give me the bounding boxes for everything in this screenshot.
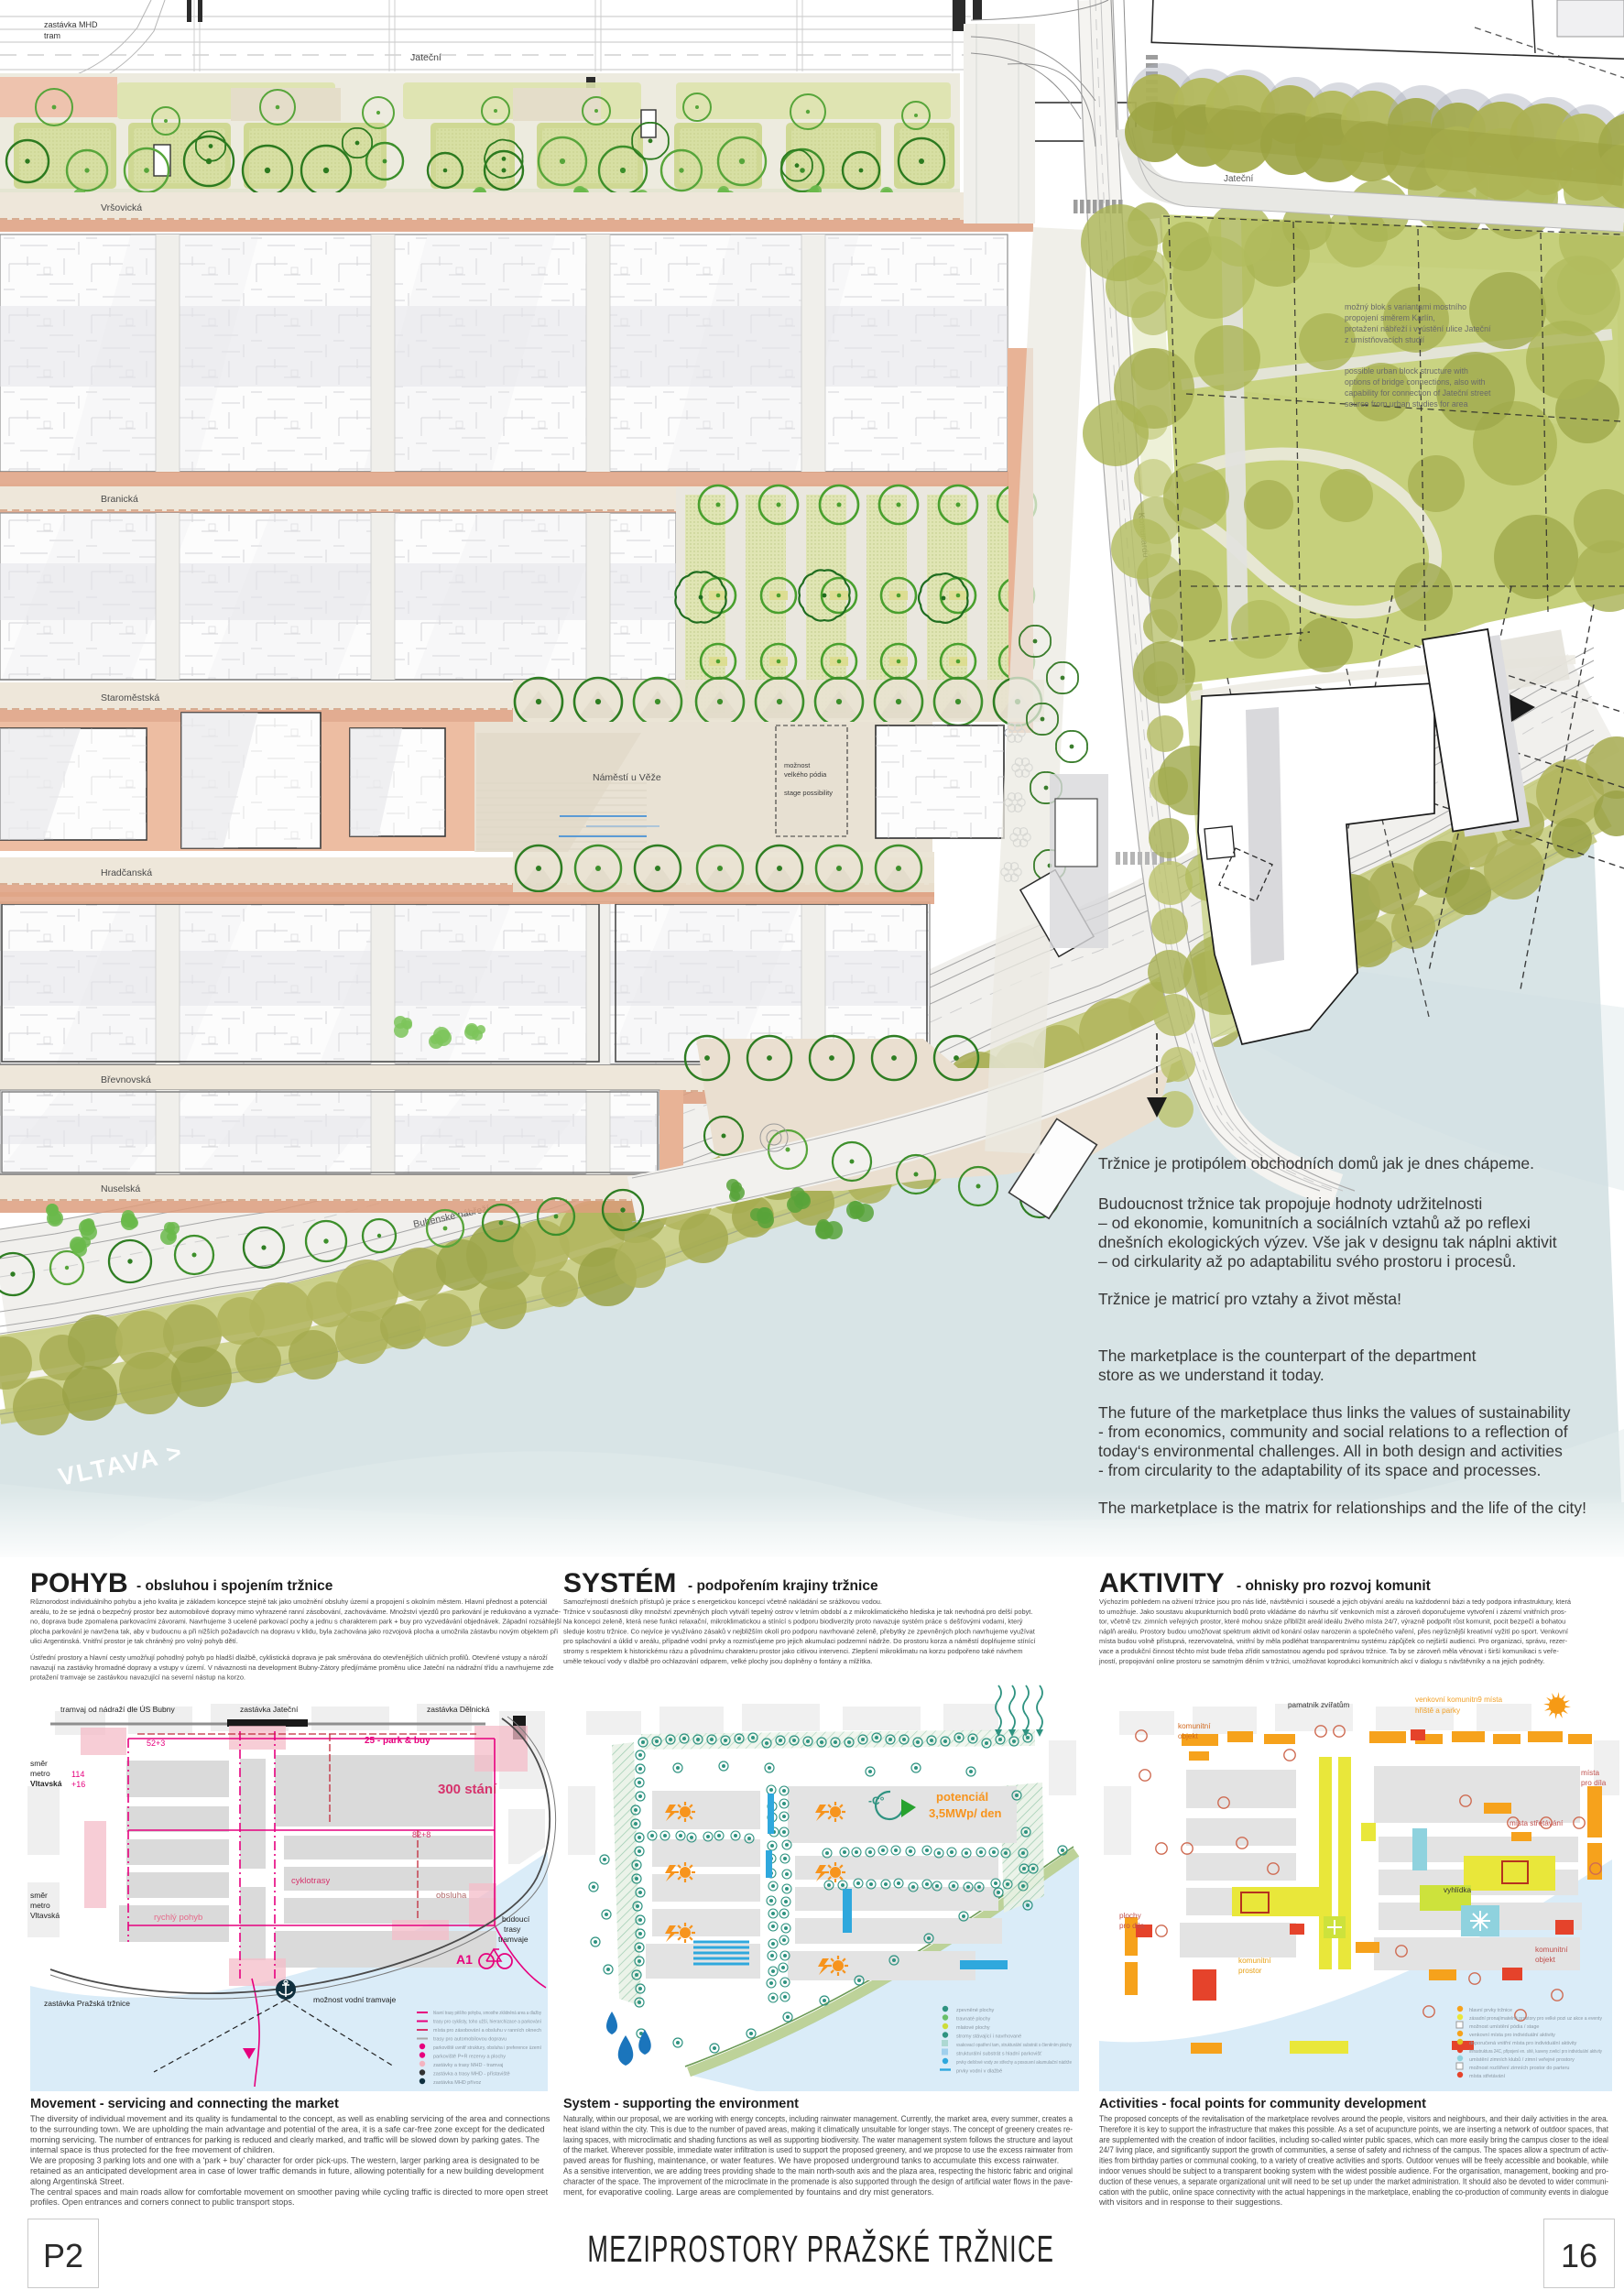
svg-text:náplň areálu. Prostory budou u: náplň areálu. Prostory budou umožňovat s…	[1099, 1627, 1569, 1635]
svg-text:protažení nábřeží i vyústění u: protažení nábřeží i vyústění ulice Jateč…	[1345, 324, 1491, 333]
svg-text:laxing spaces, with microclima: laxing spaces, with microclimatic and sh…	[563, 2135, 1073, 2144]
svg-text:A1: A1	[456, 1952, 473, 1967]
svg-text:are supplemented with the crea: are supplemented with the creation of in…	[1099, 2135, 1608, 2144]
svg-text:POHYB: POHYB	[30, 1568, 128, 1598]
svg-text:protažení tramvaje se zastávko: protažení tramvaje se zastávkou navazují…	[30, 1674, 245, 1682]
svg-text:pro díla: pro díla	[1119, 1922, 1145, 1930]
svg-text:prvky vodní v dlažbě: prvky vodní v dlažbě	[956, 2069, 1002, 2075]
svg-text:Budoucnost tržnice tak propoju: Budoucnost tržnice tak propojuje hodnoty…	[1098, 1194, 1482, 1213]
svg-text:uměle tekoucí vody v dlažbě pr: uměle tekoucí vody v dlažbě pro ochlazov…	[563, 1657, 872, 1665]
svg-text:komunitní: komunitní	[1178, 1722, 1211, 1730]
svg-text:plocha parkování je navržena t: plocha parkování je navržena tak, aby v …	[30, 1627, 558, 1635]
svg-text:metro: metro	[30, 1901, 50, 1910]
svg-text:stromy s respektem k historick: stromy s respektem k historickému rázu a…	[563, 1647, 1023, 1655]
svg-text:metro: metro	[30, 1769, 50, 1778]
svg-text:- podpořením krajiny tržnice: - podpořením krajiny tržnice	[688, 1578, 878, 1594]
svg-text:trasy: trasy	[504, 1925, 521, 1934]
svg-text:propojení směrem Karlín,: propojení směrem Karlín,	[1345, 313, 1435, 322]
svg-text:options of bridge connections,: options of bridge connections, also with	[1345, 377, 1486, 387]
svg-text:tram: tram	[44, 31, 60, 40]
svg-text:plochy: plochy	[1119, 1912, 1142, 1920]
svg-text:Různorodost individuálního poh: Různorodost individuálního pohybu a jeho…	[30, 1598, 547, 1606]
svg-text:parkoviště P+R rezervy a ploch: parkoviště P+R rezervy a plochy	[433, 2055, 506, 2060]
svg-text:of the market. Wherever possib: of the market. Wherever possible, immedi…	[563, 2145, 1073, 2154]
svg-text:52+3: 52+3	[147, 1739, 165, 1748]
svg-text:Na koncepci zeleně, která nese: Na koncepci zeleně, která nese funkci re…	[563, 1618, 1023, 1626]
svg-text:indoor venues should be subjec: indoor venues should be subject to a tra…	[1099, 2166, 1608, 2175]
svg-text:místa střetávání: místa střetávání	[1469, 2074, 1506, 2079]
svg-text:možnost vodní tramvaje: možnost vodní tramvaje	[313, 1995, 397, 2004]
svg-text:potenciál: potenciál	[936, 1790, 988, 1804]
svg-text:komunitní: komunitní	[1535, 1946, 1568, 1954]
svg-text:možnost rozšíření zimních pros: možnost rozšíření zimních prostor do par…	[1469, 2066, 1569, 2071]
svg-text:zastávka Pražská tržnice: zastávka Pražská tržnice	[44, 1999, 130, 2008]
svg-text:z umístňovacích studií: z umístňovacích studií	[1345, 335, 1425, 344]
svg-text:+16: +16	[71, 1780, 85, 1789]
svg-text:The diversity of individual mo: The diversity of individual movement and…	[30, 2114, 550, 2123]
svg-text:Vltavská: Vltavská	[30, 1911, 60, 1920]
svg-text:Naturally, within our proposal: Naturally, within our proposal, we are w…	[563, 2114, 1074, 2123]
svg-text:venkovní místa pro individuáln: venkovní místa pro individuální aktivity	[1469, 2033, 1555, 2038]
svg-text:Jateční: Jateční	[1224, 174, 1253, 184]
svg-text:ulici Argentinská. Vnitřní pro: ulici Argentinská. Vnitřní prostor je ta…	[30, 1637, 238, 1645]
svg-text:areálu, to že se jedná o bezpe: areálu, to že se jedná o bezpečný prosto…	[30, 1608, 561, 1616]
svg-text:Tržnice je matricí pro vztahy: Tržnice je matricí pro vztahy a život mě…	[1098, 1290, 1401, 1308]
svg-text:hlavní trasy pěšího pohybu, sm: hlavní trasy pěšího pohybu, smoothe zkli…	[433, 2011, 541, 2016]
svg-text:vsakovací opatření tam, strukt: vsakovací opatření tam, strukturální sub…	[956, 2043, 1072, 2048]
svg-text:We are proposing 3 parking lot: We are proposing 3 parking lots and one …	[30, 2156, 540, 2165]
svg-text:obsluha: obsluha	[436, 1891, 467, 1901]
svg-text:paved areas for flushing, main: paved areas for flushing, maintenance, o…	[563, 2156, 1059, 2165]
svg-text:with visitors and in response: with visitors and in response to their s…	[1098, 2197, 1282, 2207]
svg-text:trasy pro automobilovou doprav: trasy pro automobilovou dopravu	[433, 2037, 507, 2043]
svg-text:heat island within the city. T: heat island within the city. This is due…	[563, 2124, 1073, 2133]
svg-text:The marketplace is the matrix: The marketplace is the matrix for relati…	[1098, 1499, 1586, 1517]
svg-text:tor, včetně tzv. zimních veřej: tor, včetně tzv. zimních veřejných prost…	[1099, 1618, 1565, 1626]
svg-text:capability for connection of J: capability for connection of Jateční str…	[1345, 388, 1491, 398]
svg-text:Ústřední prostory a hlavní ces: Ústřední prostory a hlavní cesty umožňuj…	[30, 1653, 549, 1662]
svg-text:zastávka MHD přívoz: zastávka MHD přívoz	[433, 2080, 482, 2086]
svg-text:objekt: objekt	[1178, 1732, 1199, 1740]
svg-text:24/7 living place, and signifi: 24/7 living place, and significantly sup…	[1099, 2145, 1608, 2154]
svg-text:-C°: -C°	[868, 1794, 885, 1807]
svg-text:114: 114	[71, 1770, 84, 1779]
svg-text:MEZIPROSTORY PRAŽSKÉ TRŽNICE: MEZIPROSTORY PRAŽSKÉ TRŽNICE	[587, 2228, 1054, 2270]
svg-text:along Argentinská Street.: along Argentinská Street.	[30, 2176, 125, 2186]
svg-text:infrastruktura 24C, připojení: infrastruktura 24C, připojení en. sítě, …	[1469, 2049, 1602, 2055]
svg-text:- ohnisky pro rozvoj komunit: - ohnisky pro rozvoj komunit	[1237, 1578, 1431, 1594]
svg-text:možnost umístění pódia / stage: možnost umístění pódia / stage	[1469, 2024, 1539, 2030]
svg-text:to umožňuje. Jako soustavu aku: to umožňuje. Jako soustavu akupunkturníc…	[1099, 1608, 1567, 1616]
svg-text:směr: směr	[30, 1891, 48, 1900]
svg-text:zásadní pronajímatelné prostor: zásadní pronajímatelné prostory pro velk…	[1469, 2016, 1602, 2022]
svg-text:P2: P2	[43, 2237, 83, 2274]
svg-text:budoucí: budoucí	[502, 1914, 530, 1924]
svg-text:morning servicing. The number: morning servicing. The number of entranc…	[30, 2135, 540, 2144]
svg-text:System - supporting the enviro: System - supporting the environment	[563, 2097, 799, 2111]
svg-text:zastávka MHD: zastávka MHD	[44, 20, 98, 29]
svg-text:store as we understand it toda: store as we understand it today.	[1098, 1366, 1324, 1384]
svg-text:hlavní prvky tržnice: hlavní prvky tržnice	[1469, 2008, 1512, 2013]
svg-text:zpevněné plochy: zpevněné plochy	[956, 2008, 995, 2013]
svg-text:- from circularity to the adap: - from circularity to the adaptability o…	[1098, 1461, 1541, 1479]
svg-text:komunitní: komunitní	[1238, 1957, 1271, 1965]
svg-text:tramvaje: tramvaje	[498, 1935, 529, 1944]
svg-text:25 - park & buy: 25 - park & buy	[365, 1736, 431, 1746]
svg-text:objekt: objekt	[1535, 1956, 1556, 1964]
svg-text:pro díla: pro díla	[1581, 1779, 1607, 1787]
svg-text:rychlý pohyb: rychlý pohyb	[154, 1913, 202, 1923]
svg-text:dnešních ekologických výzev. V: dnešních ekologických výzev. Vše jak v d…	[1098, 1233, 1557, 1251]
svg-text:The proposed concepts of the r: The proposed concepts of the revitalisat…	[1099, 2114, 1608, 2123]
svg-text:umístění zimních klubů / zimní: umístění zimních klubů / zimní veřejné p…	[1469, 2056, 1575, 2063]
svg-text:possible urban block structure: possible urban block structure with	[1345, 366, 1468, 376]
svg-text:The future of the marketplace: The future of the marketplace thus links…	[1098, 1403, 1571, 1422]
svg-text:SYSTÉM: SYSTÉM	[563, 1567, 676, 1598]
svg-text:prostor: prostor	[1238, 1967, 1262, 1975]
svg-text:velkého pódia: velkého pódia	[784, 770, 827, 779]
svg-text:As a sensitive intervention, w: As a sensitive intervention, we are addi…	[563, 2166, 1073, 2175]
svg-text:today‘s environmental challeng: today‘s environmental challenges. All in…	[1098, 1442, 1563, 1460]
svg-text:- from economics, community an: - from economics, community and social r…	[1098, 1423, 1568, 1441]
svg-text:Náměstí u Věže: Náměstí u Věže	[593, 772, 661, 783]
svg-text:stage possibility: stage possibility	[784, 789, 833, 797]
svg-text:venkovní komunitn9 místa: venkovní komunitn9 místa	[1415, 1696, 1503, 1704]
svg-text:– od cirkularity až po adaptab: – od cirkularity až po adaptabilitu svéh…	[1098, 1252, 1516, 1270]
svg-text:místa střetávání: místa střetávání	[1510, 1819, 1564, 1827]
svg-text:16: 16	[1561, 2237, 1597, 2274]
svg-text:AKTIVITY: AKTIVITY	[1099, 1568, 1225, 1598]
svg-text:doporučená vnitřní místa pro i: doporučená vnitřní místa pro individuáln…	[1469, 2041, 1577, 2046]
svg-text:no, doprava bude zpomalena par: no, doprava bude zpomalena parkovacími z…	[30, 1618, 562, 1626]
svg-text:zastávka Jateční: zastávka Jateční	[240, 1705, 299, 1714]
svg-text:300 stání: 300 stání	[438, 1782, 497, 1797]
svg-text:duction of these venues, a sep: duction of these venues, a separate orga…	[1099, 2176, 1608, 2186]
svg-text:cyklotrasy: cyklotrasy	[291, 1876, 330, 1886]
svg-text:internal space is thus protect: internal space is thus protected for the…	[30, 2145, 275, 2154]
svg-text:zastávky a trasy MHD - tramvaj: zastávky a trasy MHD - tramvaj	[433, 2063, 503, 2068]
svg-text:Therefore it is key to support: Therefore it is key to support the infra…	[1099, 2124, 1608, 2133]
svg-text:pamatník zvířatům: pamatník zvířatům	[1288, 1700, 1350, 1709]
svg-text:The central spaces and main ro: The central spaces and main roads allow …	[30, 2187, 549, 2197]
svg-text:Jateční: Jateční	[410, 52, 441, 63]
svg-text:vyhlídka: vyhlídka	[1444, 1886, 1471, 1894]
svg-text:Staroměstská: Staroměstská	[101, 692, 159, 703]
svg-text:směr: směr	[30, 1759, 48, 1768]
svg-text:vace a produkční činnost těcht: vace a produkční činnost těchto míst bud…	[1099, 1647, 1559, 1655]
svg-text:prvky dešťové vody ze střechy: prvky dešťové vody ze střechy a posouvní…	[956, 2060, 1072, 2066]
svg-text:The marketplace is the counter: The marketplace is the counterpart of th…	[1098, 1347, 1477, 1365]
svg-text:3,5MWp/ den: 3,5MWp/ den	[929, 1806, 1002, 1820]
svg-text:Branická: Branická	[101, 494, 138, 505]
svg-text:Samozřejmostí dnešních přístup: Samozřejmostí dnešních přístupů je práce…	[563, 1598, 882, 1606]
svg-text:profiles. Open entrances and c: profiles. Open entrances and corners con…	[30, 2197, 295, 2207]
svg-text:Activities - focal points for: Activities - focal points for community …	[1099, 2097, 1426, 2111]
svg-text:zastávka a trasy MHD - přístav: zastávka a trasy MHD - přístaviště	[433, 2072, 510, 2077]
svg-text:trasy pro cyklisty, toho užší,: trasy pro cyklisty, toho užší, hierarchi…	[433, 2020, 541, 2025]
svg-text:cation with the public, online: cation with the public, online space con…	[1099, 2187, 1608, 2197]
svg-text:hřiště a parky: hřiště a parky	[1415, 1707, 1461, 1715]
svg-text:82+8: 82+8	[412, 1830, 431, 1839]
svg-text:jností, propojování online pro: jností, propojování online prostoru se s…	[1098, 1657, 1544, 1665]
svg-text:ities from birthday parties or: ities from birthday parties or communal …	[1099, 2156, 1608, 2165]
svg-text:Movement - servicing and conn: Movement - servicing and connecting the …	[30, 2097, 339, 2111]
svg-text:source from urban studies for: source from urban studies for area	[1345, 399, 1468, 409]
svg-text:místa: místa	[1581, 1769, 1599, 1777]
svg-text:zastávka Dělnická: zastávka Dělnická	[427, 1705, 490, 1714]
svg-text:Břevnovská: Břevnovská	[101, 1074, 151, 1085]
svg-text:ment, for evaporative cooling.: ment, for evaporative cooling. Large are…	[563, 2187, 933, 2197]
svg-text:navazují na zastávky hromadné: navazují na zastávky hromadné dopravy a …	[30, 1663, 553, 1672]
svg-text:mlatové plochy: mlatové plochy	[956, 2025, 990, 2031]
svg-text:to the surrounding town. We ar: to the surrounding town. We are upholdin…	[30, 2124, 545, 2133]
svg-text:- obsluhou i spojením tržnice: - obsluhou i spojením tržnice	[136, 1578, 333, 1594]
svg-text:místa pro zásobování a obsluhu: místa pro zásobování a obsluhu v ranních…	[433, 2028, 541, 2034]
svg-text:sleduje kostru tržnice. Co nej: sleduje kostru tržnice. Co nejvíce je vy…	[563, 1627, 1035, 1635]
svg-text:Nuselská: Nuselská	[101, 1183, 140, 1194]
svg-text:Vršovická: Vršovická	[101, 202, 142, 213]
svg-text:Tržnice je protipólem obchodní: Tržnice je protipólem obchodních domů ja…	[1098, 1154, 1534, 1172]
svg-text:možnost: možnost	[784, 761, 811, 769]
svg-text:strukturální substrát s hladní: strukturální substrát s hladní parkovišť	[956, 2052, 1042, 2057]
svg-text:Hradčanská: Hradčanská	[101, 867, 152, 878]
svg-text:místa budou volně přístupná, r: místa budou volně přístupná, rezervovate…	[1099, 1637, 1568, 1645]
svg-text:Vltavská: Vltavská	[30, 1779, 62, 1788]
svg-text:tramvaj od nádraží dle ÚS Bubn: tramvaj od nádraží dle ÚS Bubny	[60, 1705, 175, 1714]
svg-text:možný blok s variantami mostní: možný blok s variantami mostního	[1345, 302, 1466, 311]
svg-text:stromy stávající i navrhované: stromy stávající i navrhované	[956, 2034, 1021, 2040]
svg-text:travnaté plochy: travnaté plochy	[956, 2017, 991, 2023]
svg-text:retained as an anticipated dev: retained as an anticipated development a…	[30, 2166, 544, 2175]
svg-text:pro splachování a úklid v areá: pro splachování a úklid v areálu, případ…	[563, 1637, 1036, 1645]
svg-text:Tržnice v současnosti díky mno: Tržnice v současnosti díky množství zpev…	[563, 1608, 1032, 1616]
svg-text:Výchozím pohledem na oživení t: Výchozím pohledem na oživení tržnice jso…	[1099, 1598, 1572, 1606]
svg-text:– od ekonomie, komunitních a s: – od ekonomie, komunitních a sociálních …	[1098, 1214, 1531, 1232]
svg-text:character of the space. The im: character of the space. The improvement …	[563, 2176, 1073, 2186]
svg-text:parkoviště uvnitř struktury, o: parkoviště uvnitř struktury, obsluha i p…	[433, 2045, 541, 2051]
